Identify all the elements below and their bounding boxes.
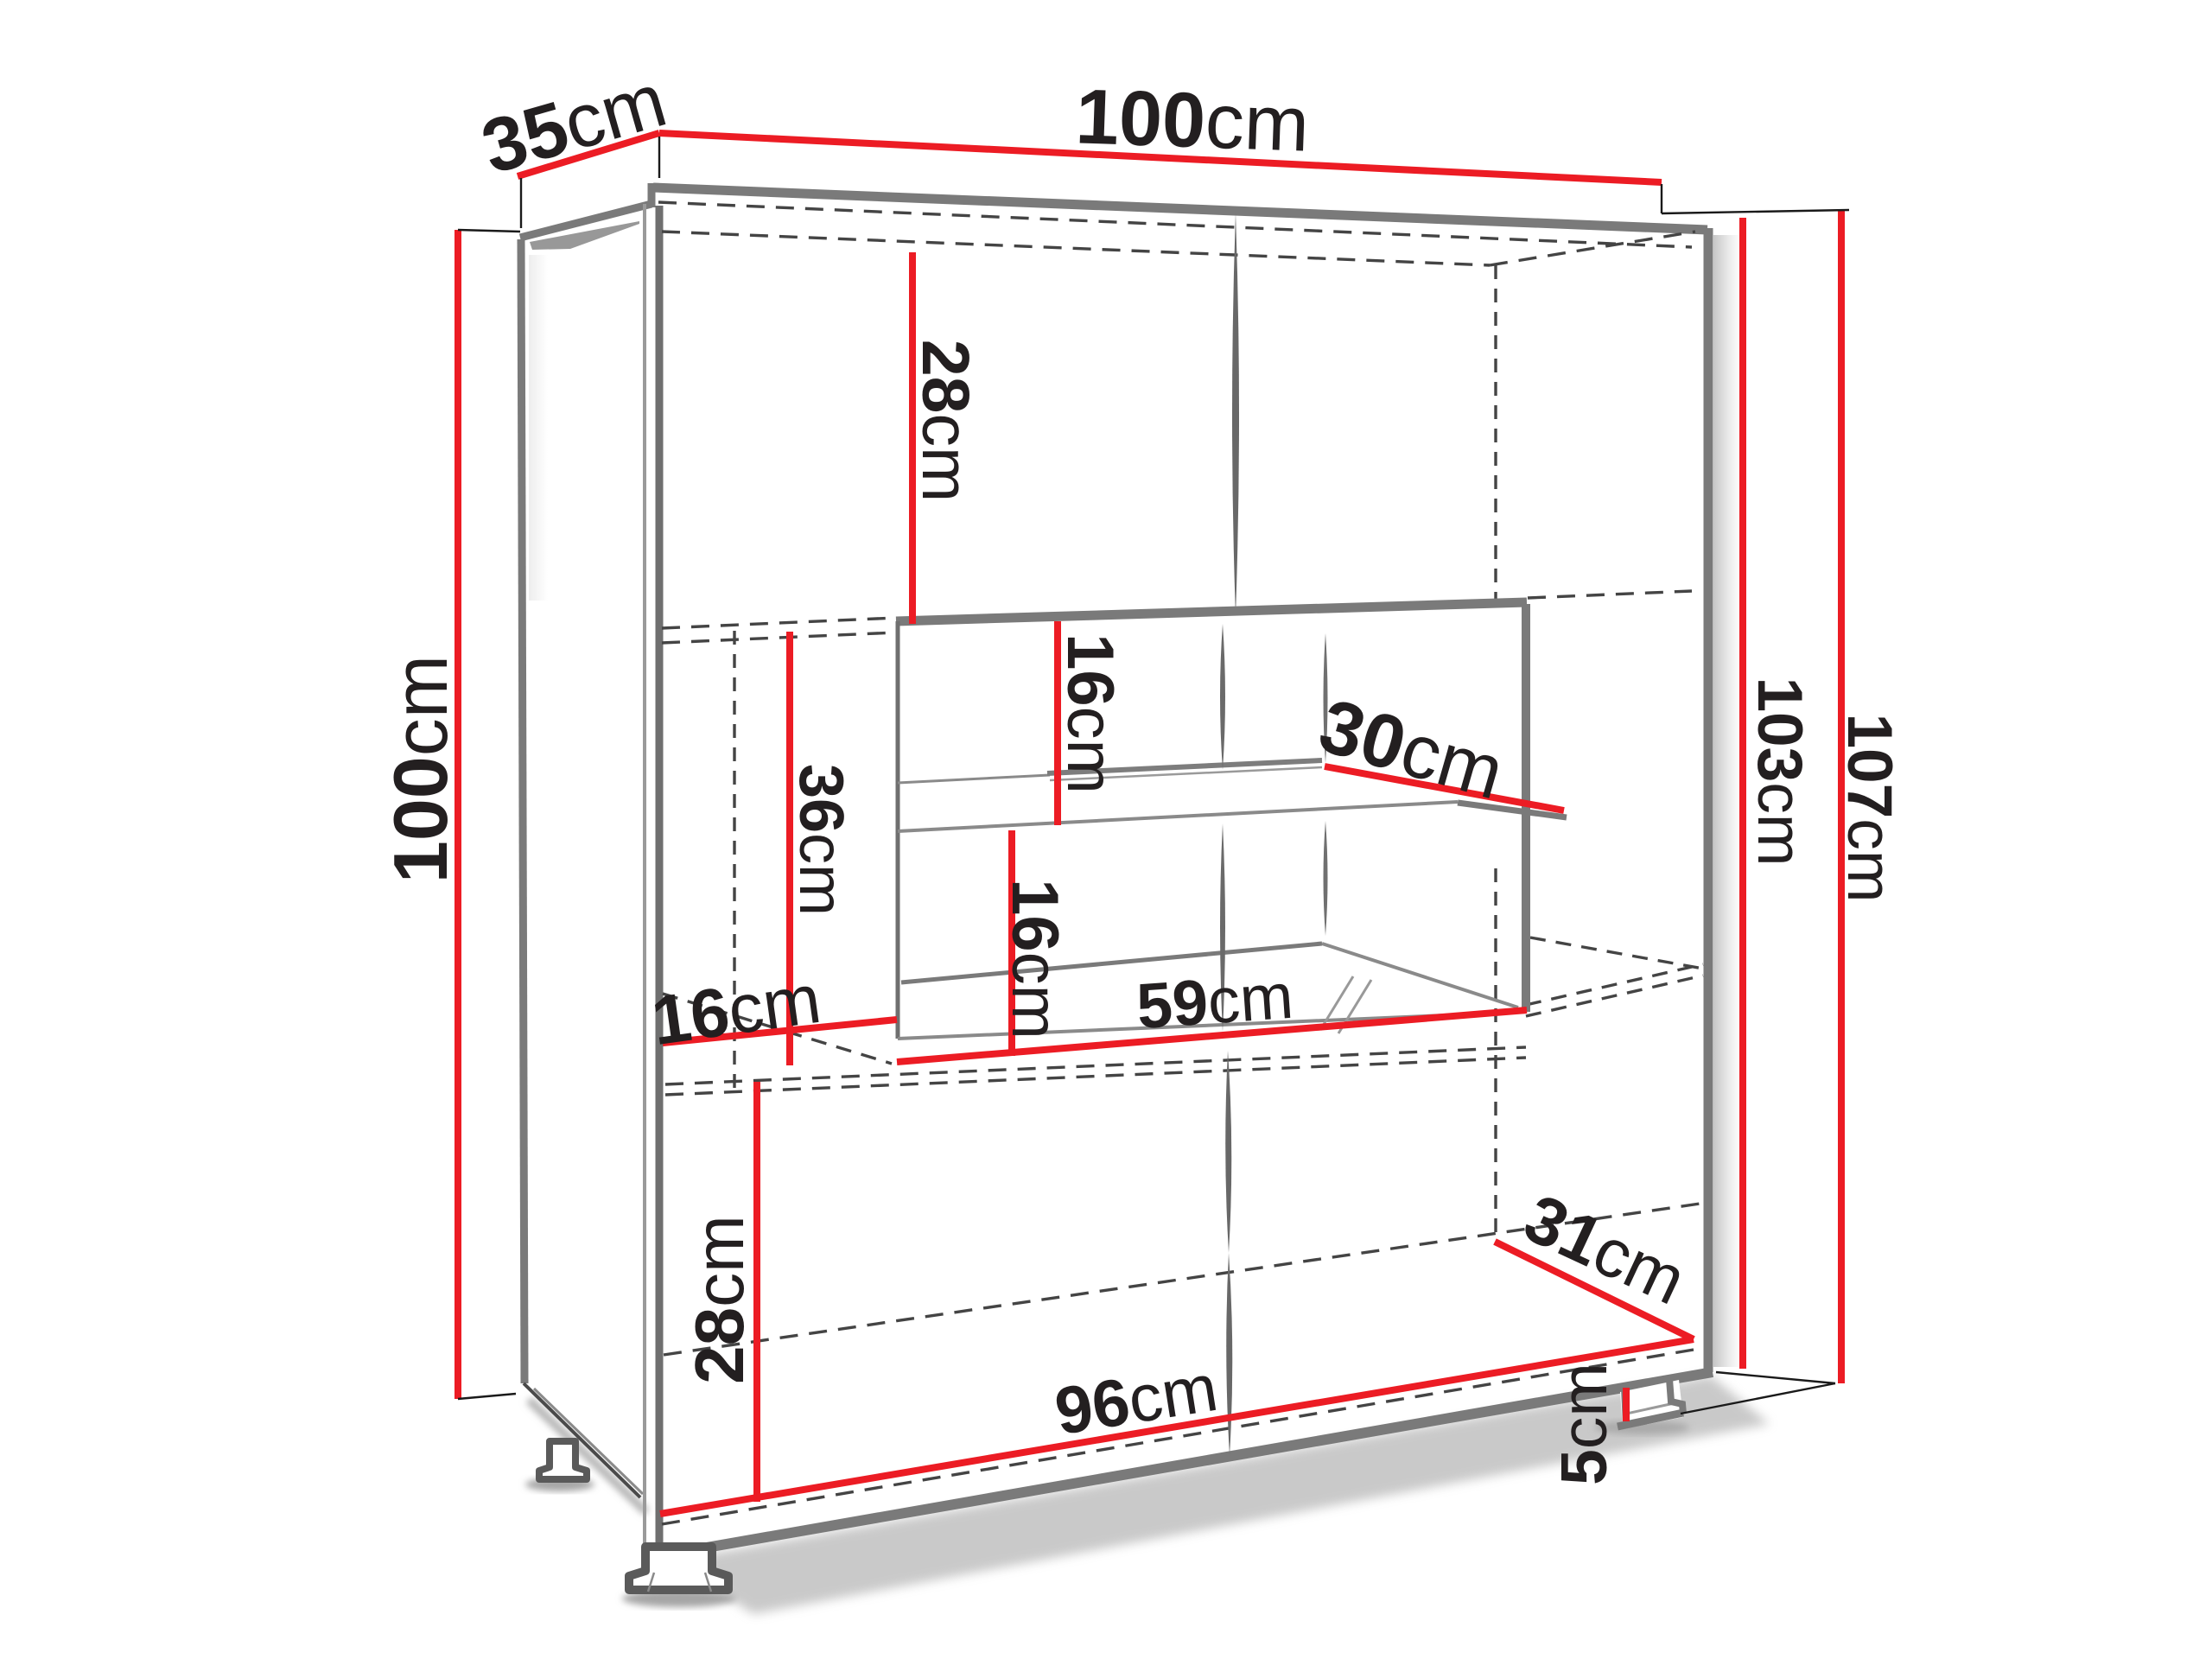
svg-text:28cm: 28cm bbox=[908, 340, 982, 502]
svg-text:100cm: 100cm bbox=[378, 655, 463, 883]
svg-text:103cm: 103cm bbox=[1745, 677, 1815, 866]
svg-text:59cm: 59cm bbox=[1135, 959, 1295, 1041]
svg-text:100cm: 100cm bbox=[1074, 73, 1310, 168]
svg-text:28cm: 28cm bbox=[681, 1215, 758, 1384]
svg-text:16cm: 16cm bbox=[999, 879, 1072, 1039]
svg-text:36cm: 36cm bbox=[786, 764, 855, 916]
svg-text:5cm: 5cm bbox=[1548, 1363, 1620, 1485]
svg-text:16cm: 16cm bbox=[1054, 633, 1128, 794]
svg-text:107cm: 107cm bbox=[1835, 713, 1905, 902]
